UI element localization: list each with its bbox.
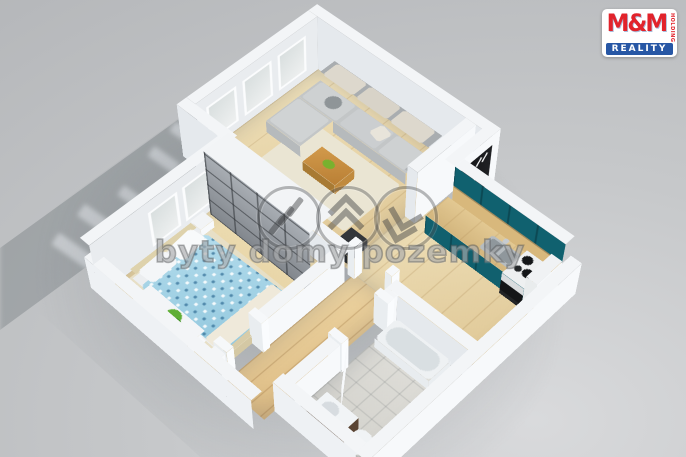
mm-reality-logo: M&M HOLDING REALITY: [602, 9, 677, 57]
door-emblem: [476, 157, 483, 166]
logo-subtitle: REALITY: [606, 43, 673, 55]
logo-title: M&M: [607, 11, 667, 35]
floorplan-scene: [0, 0, 686, 457]
render-canvas: byty domy pozemky M&M HOLDING REALITY: [0, 0, 686, 457]
logo-vertical-text: HOLDING: [669, 13, 674, 42]
